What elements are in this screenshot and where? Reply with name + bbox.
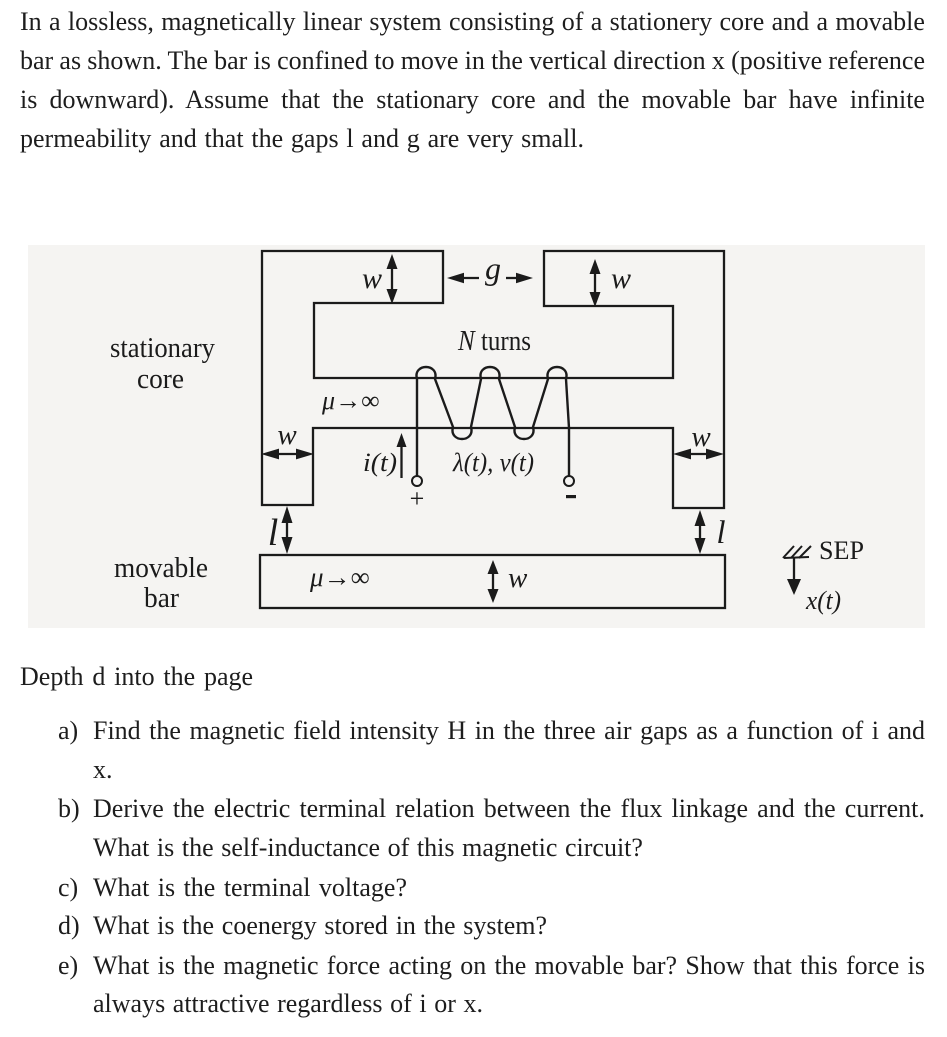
- svg-text:N turns: N turns: [457, 325, 531, 357]
- svg-text:i(t): i(t): [363, 448, 397, 477]
- svg-text:λ(t), v(t): λ(t), v(t): [452, 448, 534, 477]
- svg-text:bar: bar: [144, 582, 179, 614]
- svg-text:l: l: [268, 512, 279, 554]
- svg-text:core: core: [137, 363, 184, 395]
- svg-text:g: g: [485, 250, 501, 286]
- svg-text:l: l: [716, 515, 725, 551]
- svg-text:stationary: stationary: [110, 332, 215, 364]
- svg-text:w: w: [277, 419, 297, 451]
- svg-text:+: +: [410, 484, 425, 513]
- svg-text:w: w: [508, 562, 528, 594]
- svg-text:μ→∞: μ→∞: [321, 386, 380, 415]
- svg-text:μ→∞: μ→∞: [309, 562, 370, 592]
- svg-text:w: w: [611, 262, 631, 295]
- svg-text:w: w: [691, 421, 711, 453]
- svg-text:x(t): x(t): [805, 586, 841, 615]
- svg-text:movable: movable: [114, 552, 208, 584]
- svg-text:SEP: SEP: [819, 536, 864, 565]
- svg-text:w: w: [362, 262, 382, 295]
